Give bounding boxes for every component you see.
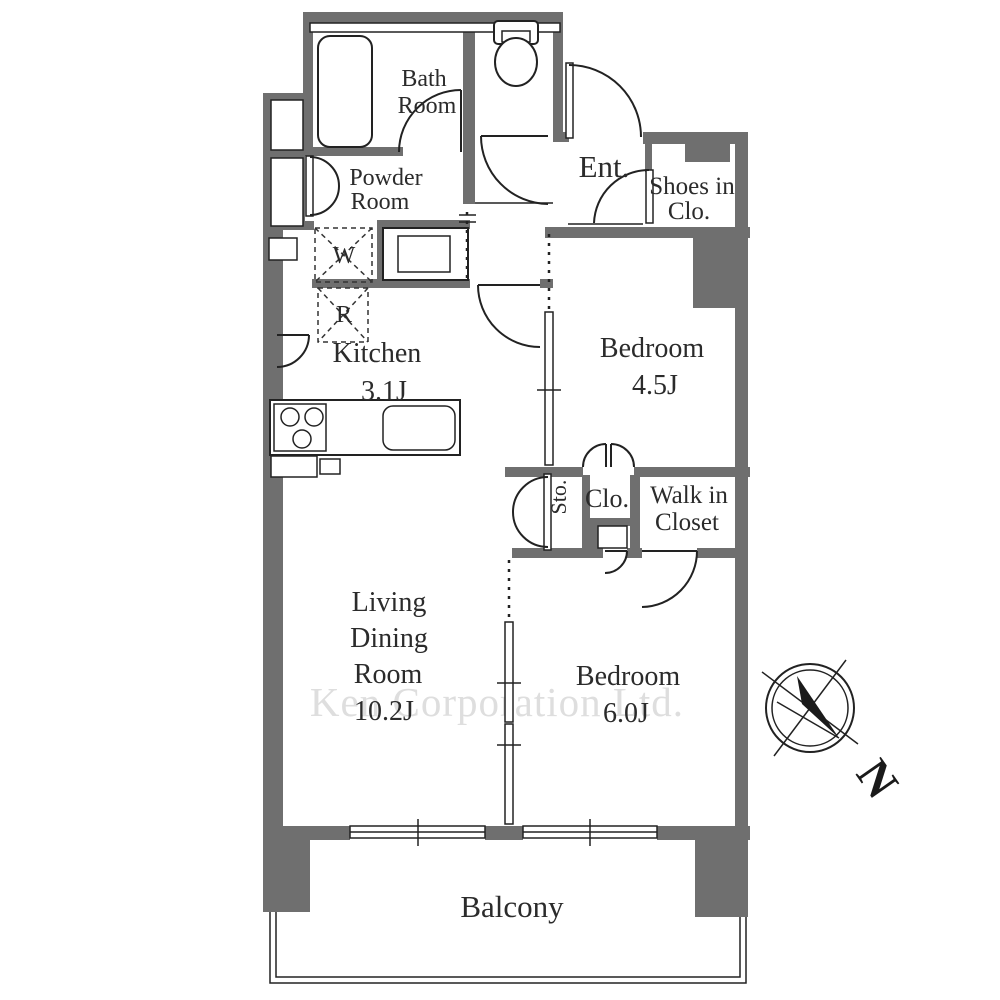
kitchen-door <box>478 285 540 347</box>
powder-room-folding-door <box>306 156 339 216</box>
bedroom-60-label: Bedroom <box>576 661 680 692</box>
powder-room-label: Powder <box>349 165 422 191</box>
toilet-door <box>475 136 553 204</box>
compass-needle <box>797 676 839 738</box>
shoes-closet-label: Clo. <box>668 198 710 225</box>
bedroom-45-label: 4.5J <box>632 370 678 401</box>
bedroom-60-label: 6.0J <box>603 698 649 729</box>
closet-niche-door <box>605 551 627 573</box>
floor-plan-drawing: Ken Corporation Ltd. <box>0 0 1000 1000</box>
kitchen-label: 3.1J <box>361 376 407 407</box>
living-dining-label: Dining <box>350 623 428 654</box>
sink <box>383 406 455 450</box>
toilet-bowl <box>495 38 537 86</box>
balcony-window-left <box>350 819 485 846</box>
walk-in-closet-label: Walk in <box>650 482 728 509</box>
bedroom45-closet-double-door <box>583 444 634 467</box>
kitchen-cabinet <box>271 456 317 477</box>
walk-in-closet-label: Closet <box>655 509 719 536</box>
refrigerator-label: R <box>336 302 352 328</box>
bathtub <box>318 36 372 147</box>
bath-room-label: Room <box>398 93 457 119</box>
bath-room-label: Bath <box>401 66 446 92</box>
washer-label: W <box>333 243 356 269</box>
front-door <box>566 63 641 138</box>
balcony-window-right <box>523 819 657 846</box>
living-dining-label: Living <box>352 587 427 618</box>
north-label: N <box>846 750 908 808</box>
counter-appliance <box>398 236 450 272</box>
powder-room-label: Room <box>351 189 410 215</box>
bedroom45-sliding-door <box>537 234 561 465</box>
storage-label: Sto. <box>546 480 571 515</box>
pipe-space-niches <box>269 100 627 548</box>
room-labels: Bath Room Powder Room Ent. Shoes in Clo.… <box>333 66 736 924</box>
toilet <box>494 21 538 86</box>
floor-plan: Ken Corporation Ltd. <box>0 0 1000 1000</box>
north-compass: N <box>762 660 908 808</box>
bedroom-45-label: Bedroom <box>600 333 704 364</box>
living-dining-label: 10.2J <box>354 696 414 727</box>
closet-label: Clo. <box>585 484 629 513</box>
balcony-label: Balcony <box>460 889 564 924</box>
walk-in-closet-door <box>642 551 697 607</box>
entrance-label: Ent. <box>579 149 630 184</box>
kitchen-label: Kitchen <box>333 338 422 369</box>
kitchen-cabinet-small <box>320 459 340 474</box>
living-dining-label: Room <box>354 659 423 690</box>
shoes-closet-label: Shoes in <box>649 173 735 200</box>
stove <box>274 404 326 451</box>
